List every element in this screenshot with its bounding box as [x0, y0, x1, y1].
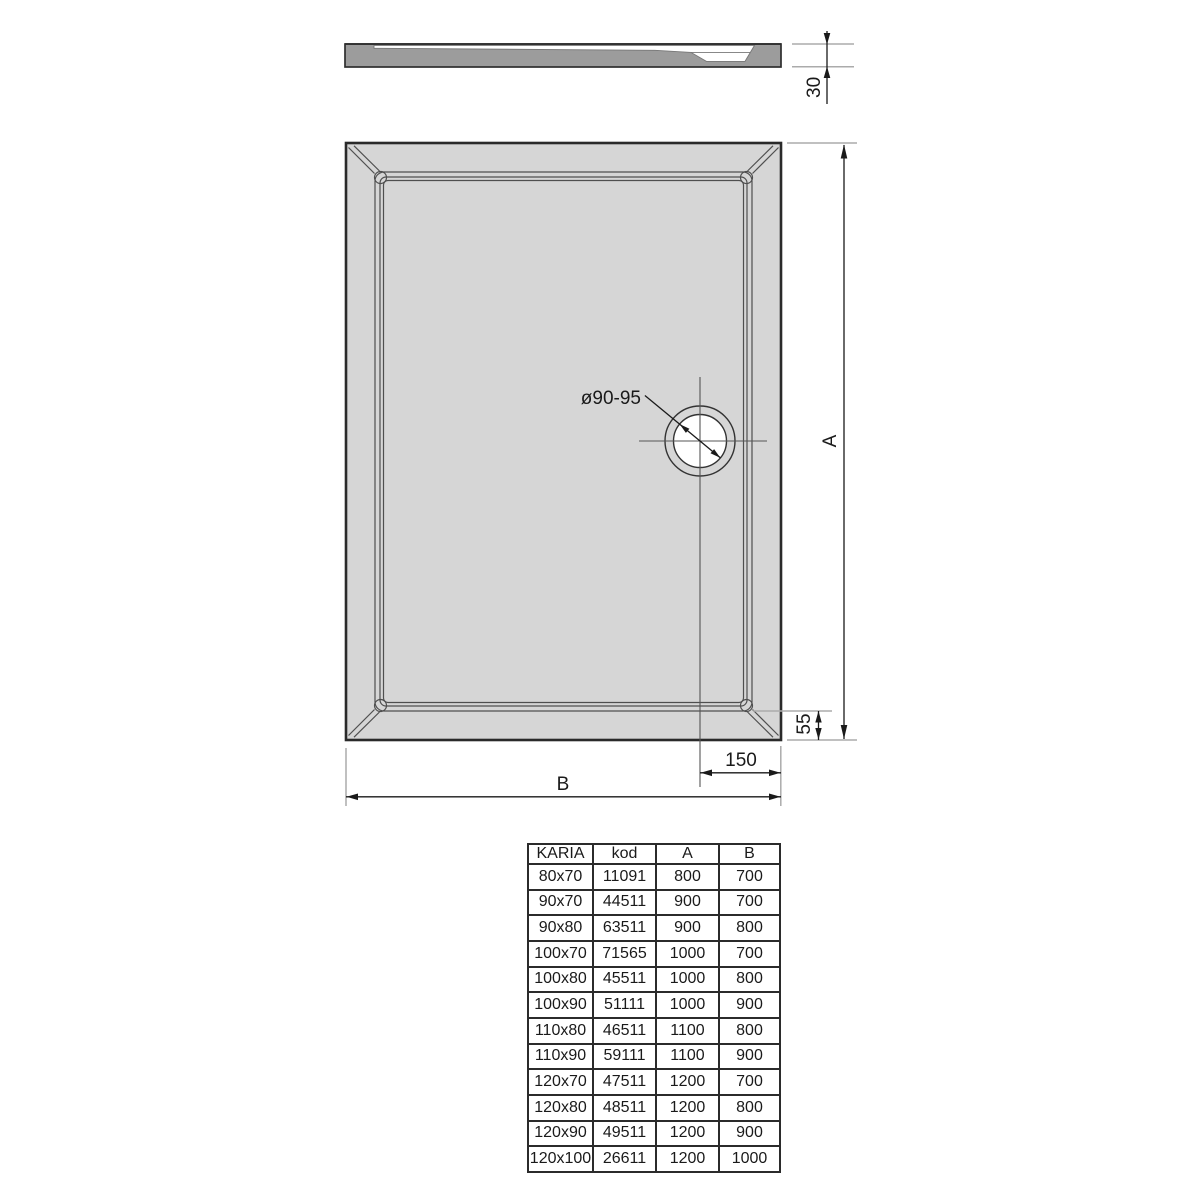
table-cell: 1200: [656, 1146, 719, 1172]
table-cell: 90x70: [528, 890, 593, 916]
arrow-right-icon: [769, 794, 781, 801]
table-cell: 800: [719, 1095, 780, 1121]
column-header-a: A: [656, 844, 719, 864]
drain-diameter-label: ø90-95: [581, 388, 641, 409]
table-cell: 47511: [593, 1069, 656, 1095]
table-cell: 63511: [593, 915, 656, 941]
column-header-b: B: [719, 844, 780, 864]
table-cell: 120x90: [528, 1121, 593, 1147]
width-label: B: [557, 774, 570, 795]
table-header-row: KARIA kod A B: [528, 844, 780, 864]
table-row: 100x70715651000700: [528, 941, 780, 967]
table-cell: 46511: [593, 1018, 656, 1044]
drain-edge-offset-label: 55: [794, 713, 815, 734]
arrow-down-icon: [815, 728, 821, 740]
table-cell: 120x80: [528, 1095, 593, 1121]
size-table: KARIA kod A B 80x701109180070090x7044511…: [527, 843, 781, 1173]
table-row: 120x80485111200800: [528, 1095, 780, 1121]
table-cell: 900: [656, 915, 719, 941]
size-table-body: 80x701109180070090x704451190070090x80635…: [528, 864, 780, 1172]
column-header-karia: KARIA: [528, 844, 593, 864]
table-cell: 48511: [593, 1095, 656, 1121]
table-cell: 11091: [593, 864, 656, 890]
table-cell: 51111: [593, 992, 656, 1018]
table-cell: 71565: [593, 941, 656, 967]
height-label: A: [820, 434, 841, 447]
table-cell: 44511: [593, 890, 656, 916]
table-row: 110x90591111100900: [528, 1044, 780, 1070]
table-cell: 1200: [656, 1069, 719, 1095]
table-cell: 800: [719, 915, 780, 941]
table-cell: 100x90: [528, 992, 593, 1018]
table-cell: 49511: [593, 1121, 656, 1147]
arrow-left-icon: [701, 770, 713, 777]
table-cell: 26611: [593, 1146, 656, 1172]
table-row: 90x7044511900700: [528, 890, 780, 916]
table-cell: 1100: [656, 1018, 719, 1044]
width-dimension: B: [346, 748, 781, 806]
side-section-view: [345, 44, 781, 67]
column-header-kod: kod: [593, 844, 656, 864]
table-cell: 1000: [656, 967, 719, 993]
table-cell: 110x90: [528, 1044, 593, 1070]
drain-right-offset-label: 150: [725, 750, 757, 771]
table-cell: 45511: [593, 967, 656, 993]
arrow-up-icon: [841, 145, 848, 159]
table-cell: 1000: [656, 941, 719, 967]
arrow-right-icon: [769, 770, 781, 777]
table-row: 100x80455111000800: [528, 967, 780, 993]
arrow-down-icon: [841, 725, 848, 739]
table-row: 110x80465111100800: [528, 1018, 780, 1044]
table-row: 120x70475111200700: [528, 1069, 780, 1095]
table-cell: 800: [719, 967, 780, 993]
thickness-dimension: 30: [792, 31, 854, 104]
height-dimension: A: [787, 143, 857, 740]
arrow-left-icon: [347, 794, 359, 801]
shower-tray-dimension-sheet: 30: [0, 0, 1200, 1200]
table-cell: 1200: [656, 1121, 719, 1147]
table-cell: 1200: [656, 1095, 719, 1121]
table-cell: 100x80: [528, 967, 593, 993]
table-cell: 80x70: [528, 864, 593, 890]
table-cell: 1100: [656, 1044, 719, 1070]
table-cell: 900: [719, 992, 780, 1018]
table-cell: 120x100: [528, 1146, 593, 1172]
table-cell: 90x80: [528, 915, 593, 941]
table-cell: 900: [719, 1121, 780, 1147]
table-cell: 1000: [656, 992, 719, 1018]
table-row: 90x8063511900800: [528, 915, 780, 941]
arrow-down-icon: [824, 33, 831, 45]
thickness-label: 30: [804, 77, 825, 98]
top-plan-view: ø90-95: [346, 143, 781, 787]
table-cell: 110x80: [528, 1018, 593, 1044]
table-cell: 120x70: [528, 1069, 593, 1095]
table-cell: 700: [719, 890, 780, 916]
table-cell: 800: [656, 864, 719, 890]
table-cell: 1000: [719, 1146, 780, 1172]
arrow-up-icon: [824, 67, 831, 79]
table-cell: 900: [656, 890, 719, 916]
table-cell: 900: [719, 1044, 780, 1070]
table-row: 120x1002661112001000: [528, 1146, 780, 1172]
table-row: 120x90495111200900: [528, 1121, 780, 1147]
table-cell: 100x70: [528, 941, 593, 967]
table-cell: 700: [719, 1069, 780, 1095]
table-cell: 59111: [593, 1044, 656, 1070]
table-row: 100x90511111000900: [528, 992, 780, 1018]
table-cell: 700: [719, 864, 780, 890]
table-cell: 800: [719, 1018, 780, 1044]
table-cell: 700: [719, 941, 780, 967]
table-row: 80x7011091800700: [528, 864, 780, 890]
arrow-up-icon: [815, 711, 821, 723]
